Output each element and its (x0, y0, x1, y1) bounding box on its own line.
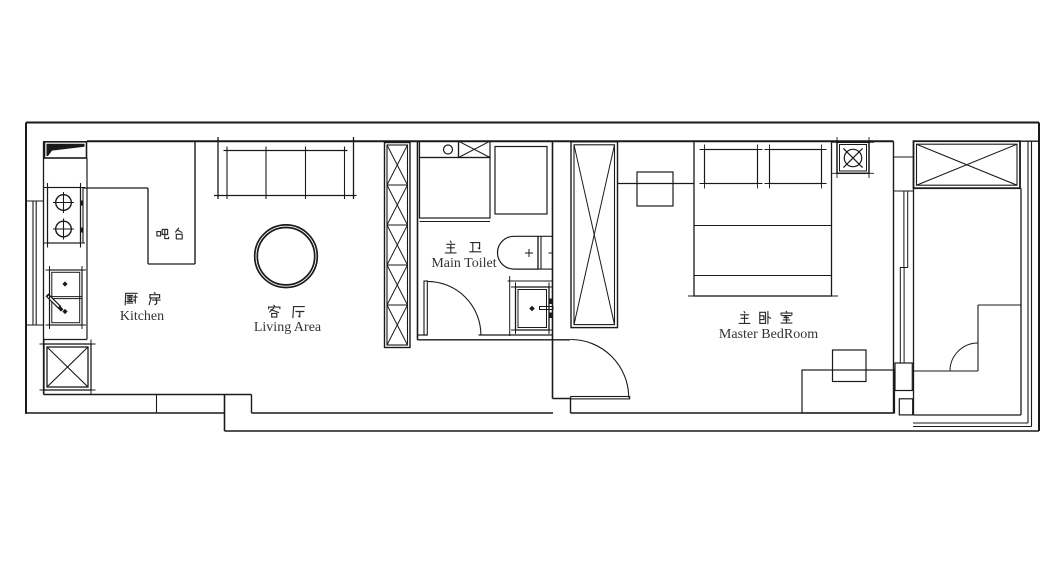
svg-text:Kitchen: Kitchen (120, 309, 164, 324)
svg-text:Master BedRoom: Master BedRoom (719, 327, 818, 342)
svg-text:Main Toilet: Main Toilet (431, 256, 496, 271)
svg-text:Living Area: Living Area (254, 320, 322, 335)
